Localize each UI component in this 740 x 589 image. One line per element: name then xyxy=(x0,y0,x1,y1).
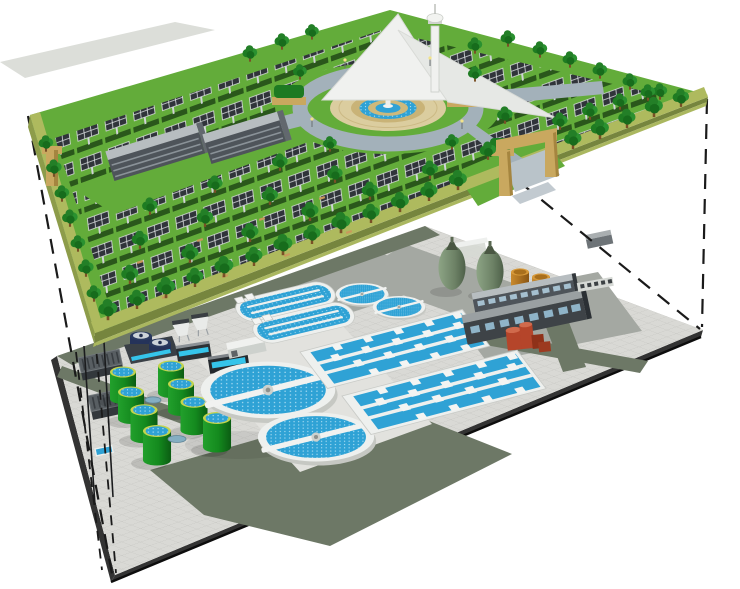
manhole-2 xyxy=(168,436,186,443)
background-road xyxy=(0,22,215,78)
scene xyxy=(0,0,740,589)
large-clarifier-2 xyxy=(258,413,376,466)
manhole-1 xyxy=(145,397,161,403)
concept-rendering xyxy=(0,0,740,589)
projection-line-right-vertical xyxy=(702,99,707,327)
small-clarifier-2 xyxy=(373,296,426,320)
